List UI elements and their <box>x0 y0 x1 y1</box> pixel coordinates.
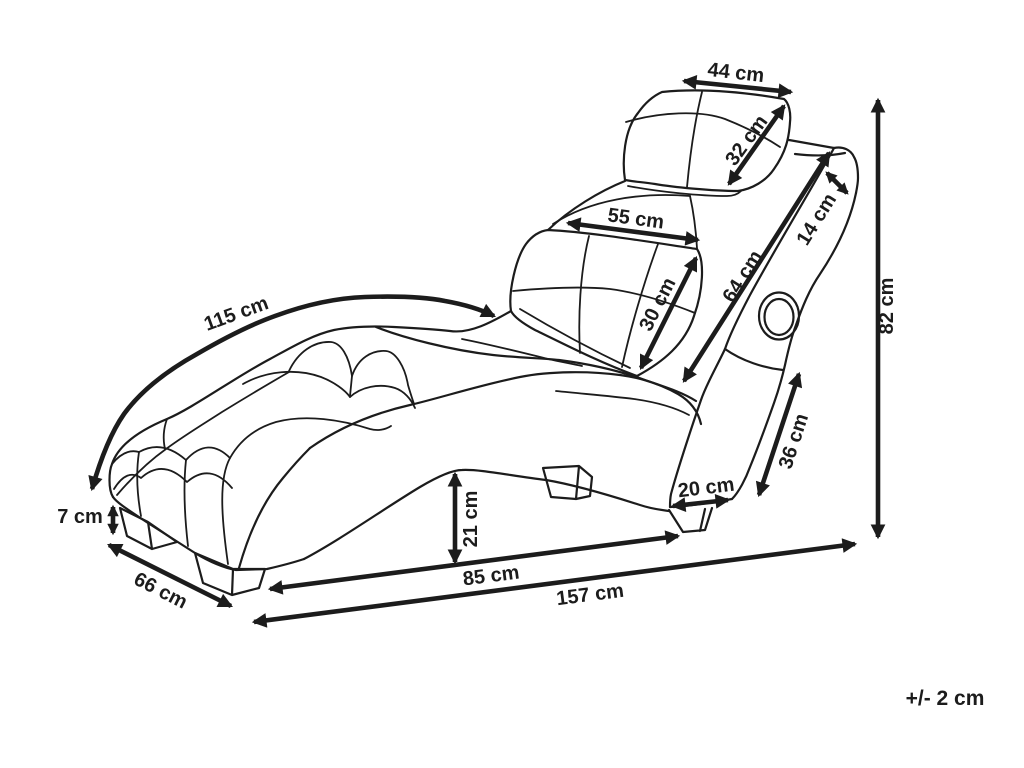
svg-text:66 cm: 66 cm <box>130 568 191 613</box>
svg-text:7 cm: 7 cm <box>57 506 103 528</box>
svg-text:21 cm: 21 cm <box>460 491 482 548</box>
svg-text:36 cm: 36 cm <box>775 411 813 472</box>
svg-text:+/- 2 cm: +/- 2 cm <box>906 687 985 710</box>
svg-text:115 cm: 115 cm <box>201 292 271 335</box>
svg-text:157 cm: 157 cm <box>555 580 625 610</box>
svg-text:85 cm: 85 cm <box>462 561 521 590</box>
svg-text:82 cm: 82 cm <box>876 278 898 335</box>
